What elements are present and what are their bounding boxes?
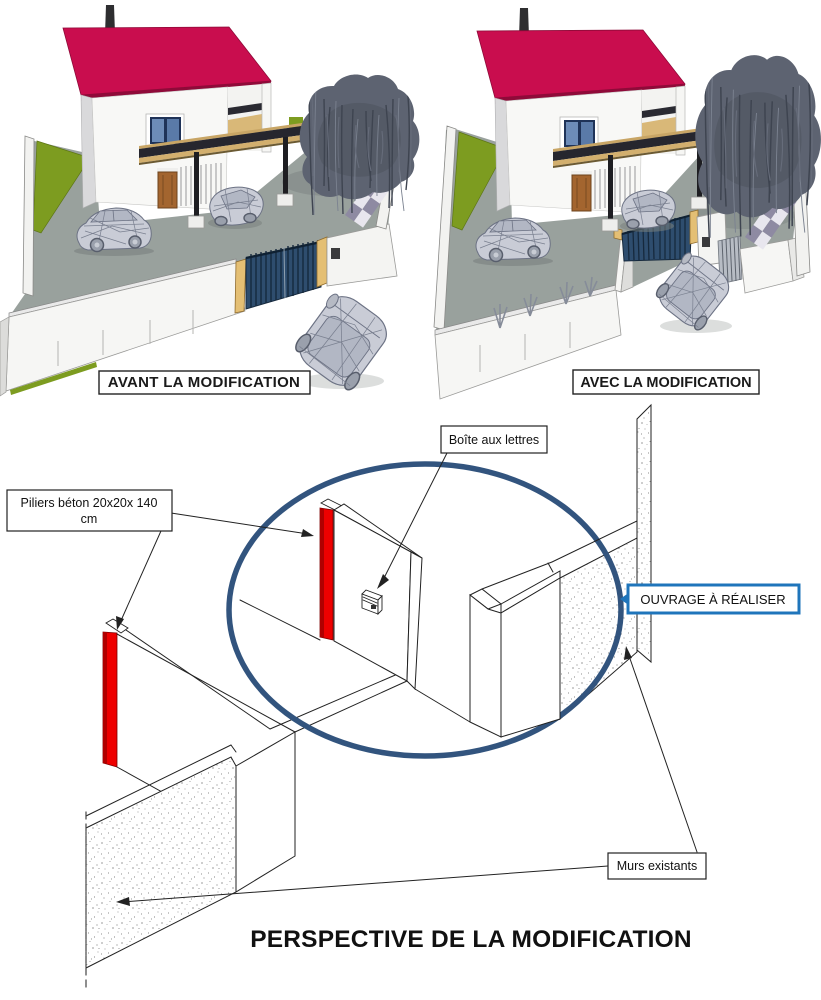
svg-text:Piliers béton 20x20x 140: Piliers béton 20x20x 140 — [21, 496, 158, 510]
svg-text:Boîte aux lettres: Boîte aux lettres — [449, 433, 539, 447]
svg-text:PERSPECTIVE DE LA MODIFICATION: PERSPECTIVE DE LA MODIFICATION — [250, 926, 692, 953]
svg-text:OUVRAGE À RÉALISER: OUVRAGE À RÉALISER — [640, 592, 785, 607]
svg-text:cm: cm — [81, 512, 98, 526]
svg-text:Murs existants: Murs existants — [617, 859, 698, 873]
svg-text:AVEC LA MODIFICATION: AVEC LA MODIFICATION — [580, 375, 751, 391]
svg-text:AVANT LA MODIFICATION: AVANT LA MODIFICATION — [108, 374, 300, 391]
